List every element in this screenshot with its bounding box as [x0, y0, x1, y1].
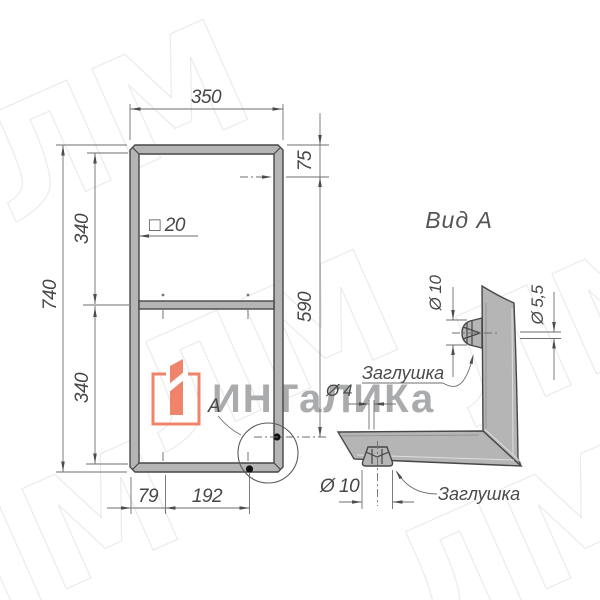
brand-wordmark: ИНТаЛИКа	[212, 377, 435, 421]
fastener-dot-bottom	[246, 465, 253, 472]
dim-hole-top: Ø 4	[325, 381, 352, 400]
dim-bottom-second: 192	[192, 486, 223, 507]
dim-width-top: 350	[191, 87, 222, 108]
dim-offset-top-right: 75	[295, 150, 316, 171]
drawing-svg: ЛМ ЛМ ЛМ ЛМ ЛМ ИНТаЛИКа А	[0, 0, 600, 600]
frame-crossbar	[139, 301, 274, 309]
detail-marker-label: А	[207, 396, 220, 417]
technical-drawing-page: ЛМ ЛМ ЛМ ЛМ ЛМ ИНТаЛИКа А	[0, 0, 600, 600]
dim-plug-cap-bottom: Ø 10	[319, 476, 360, 497]
dim-plug-cap-top: Ø 10	[426, 275, 445, 312]
plug-bottom	[362, 441, 392, 506]
detail-view-title: Вид А	[425, 207, 493, 233]
dim-height-right: 590	[295, 291, 316, 322]
dim-lower-span: 340	[72, 372, 93, 403]
plug-label-top: Заглушка	[362, 363, 444, 383]
dim-hole-side: Ø 5,5	[528, 284, 547, 325]
dim-bottom-first: 79	[138, 486, 159, 507]
dim-profile-size: □ 20	[149, 215, 186, 236]
plug-label-bottom: Заглушка	[438, 484, 520, 504]
dim-height-total: 740	[40, 279, 61, 310]
dim-upper-span: 340	[72, 213, 93, 244]
